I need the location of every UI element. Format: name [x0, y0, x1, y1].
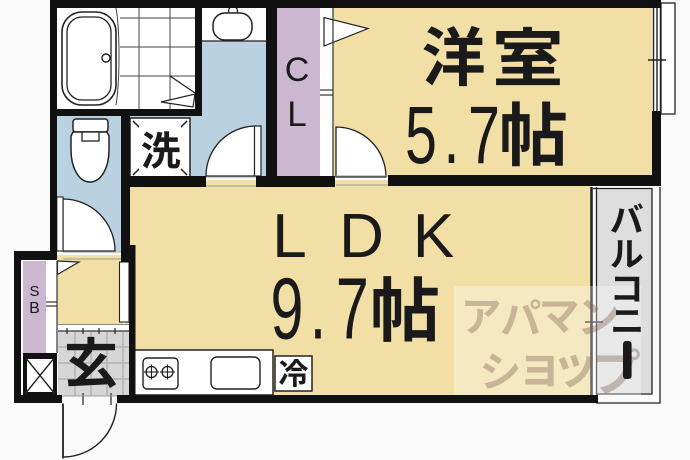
svg-text:K: K: [413, 202, 454, 271]
svg-text:7: 7: [468, 89, 500, 181]
svg-text:9: 9: [271, 260, 304, 357]
svg-text:S: S: [29, 283, 39, 300]
svg-text:7: 7: [336, 260, 369, 357]
svg-text:.: .: [310, 260, 326, 357]
svg-text:5: 5: [405, 89, 437, 181]
svg-text:B: B: [29, 300, 40, 317]
svg-text:C: C: [285, 51, 310, 89]
svg-text:.: .: [444, 89, 460, 181]
svg-text:L: L: [287, 95, 306, 134]
